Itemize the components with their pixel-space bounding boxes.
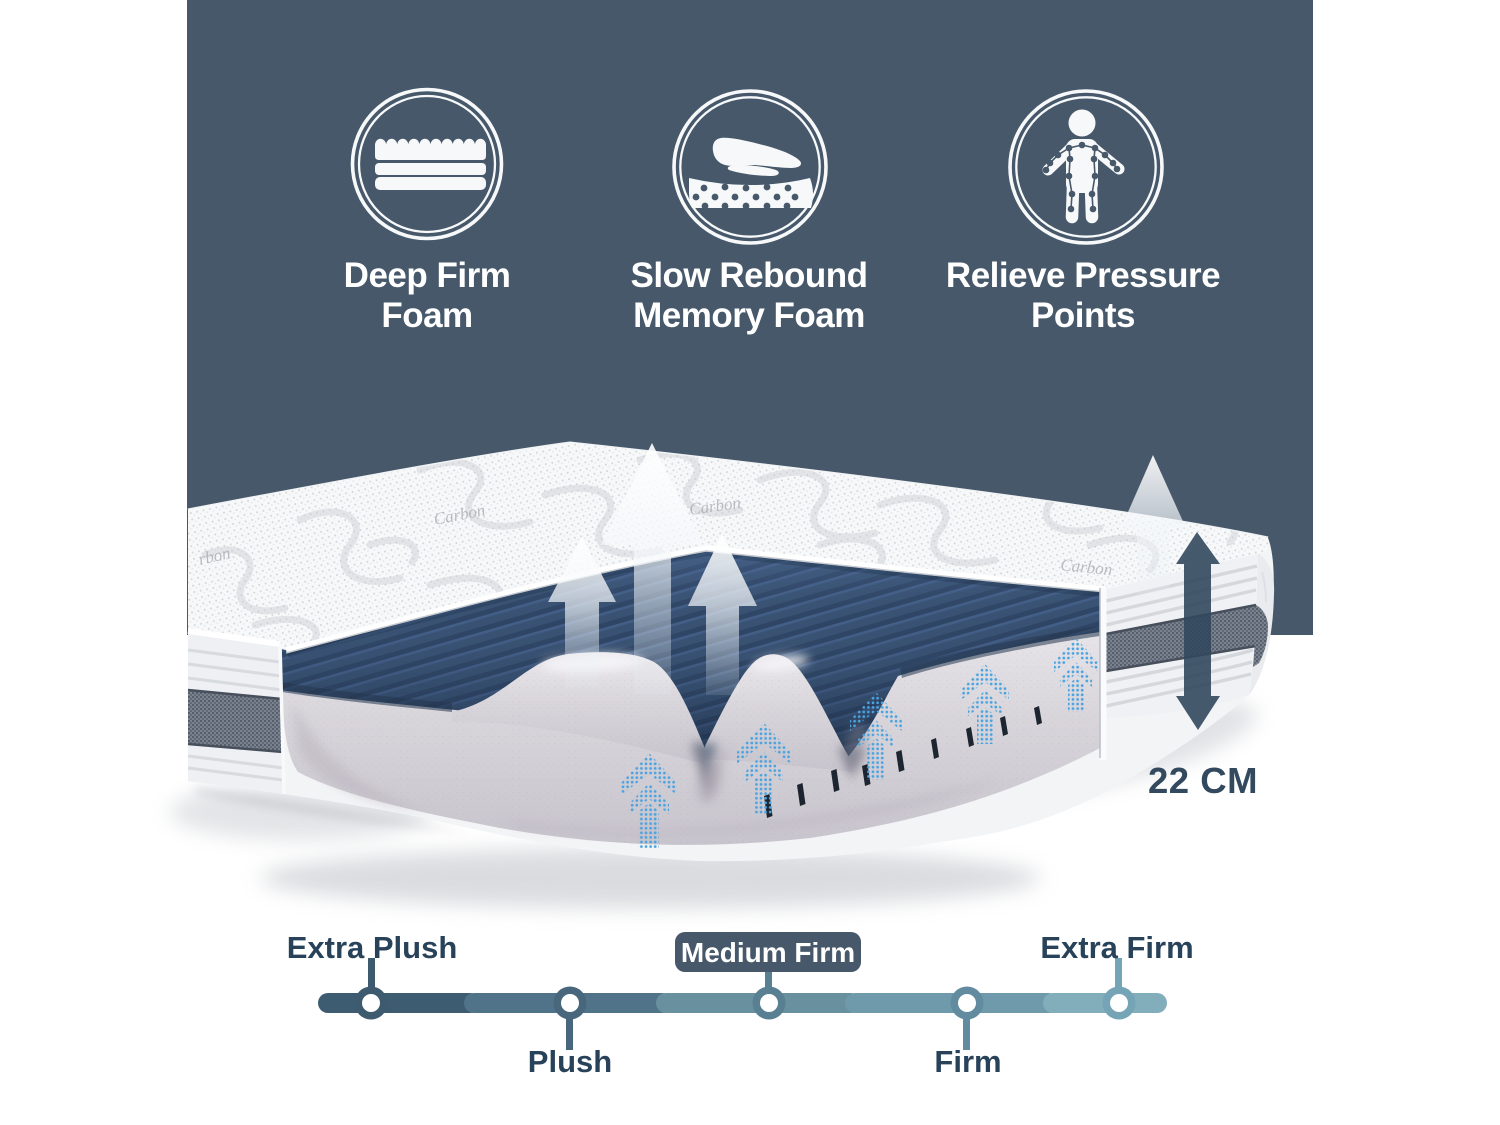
svg-text:22 CM: 22 CM	[1148, 760, 1258, 801]
